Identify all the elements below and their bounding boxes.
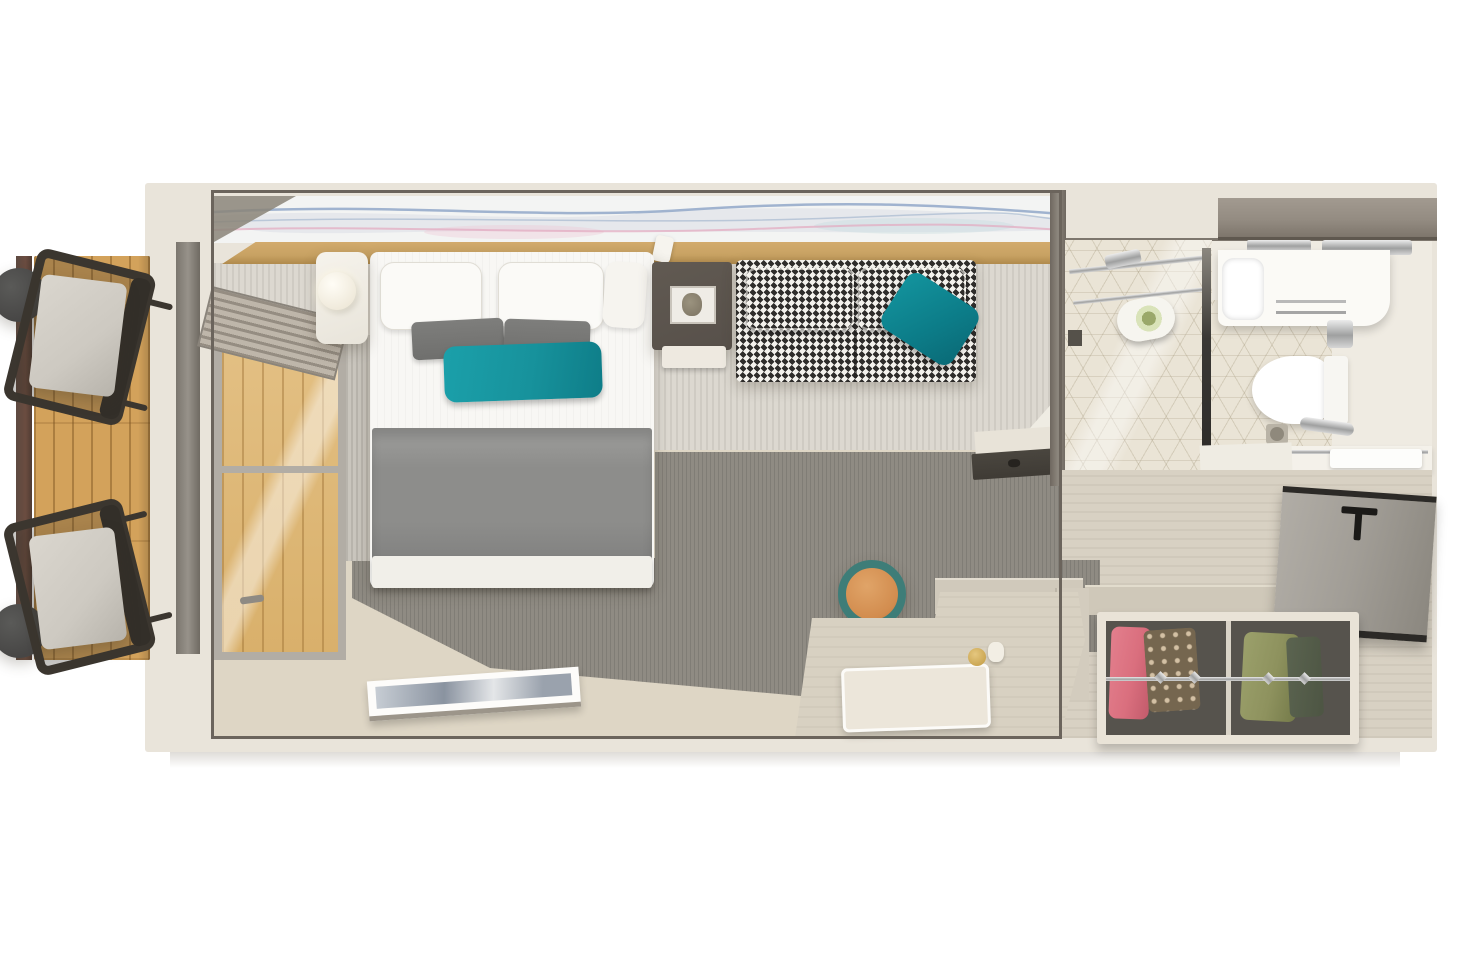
coat-hook [1008,459,1021,468]
desk-tray [841,663,991,732]
bedroom-window [214,330,346,660]
cabin-floorplan-render [0,0,1469,979]
cabin-drop-shadow [170,752,1400,768]
desk-accessory-white [988,642,1004,662]
sofa-back-cushion [746,268,854,330]
vanity-towel-rail [1276,300,1346,314]
bathroom-wood-counter [1218,198,1437,240]
side-table-decor [682,293,702,316]
chair-cushion [28,527,127,651]
bathroom-bedroom-wall [1050,190,1066,486]
carpet-strip-beside-bed [346,335,372,561]
side-table-shelf [662,346,726,368]
mural-waves [214,196,1062,243]
floor-artwork-print [375,673,572,709]
bath-corner-band [1200,442,1293,473]
toilet-tank [1324,356,1348,424]
window-middle-rail [222,466,338,473]
shower-enclosure [1065,240,1212,482]
door-handle [1353,512,1362,540]
sofa-seat-seam [854,330,857,378]
balcony-door-glass-edge [176,242,200,654]
bed-bolster-pillow [602,261,649,330]
desk-stool [838,560,906,628]
soap-dispenser [1327,320,1353,348]
wardrobe [1097,612,1359,744]
folded-towel [1330,449,1422,468]
nightstand-lamp [318,272,356,310]
bed-teal-throw-pillow [443,341,603,402]
chair-cushion [28,274,127,398]
shower-control [1068,330,1082,346]
desk-accessory-gold [968,648,986,666]
floor-drain [1266,424,1288,444]
garment-patterned [1143,627,1201,712]
towel-shelf [1286,446,1432,472]
shower-door-frame [1202,248,1211,474]
clothes-rail [1106,677,1350,681]
sink-basin [1222,258,1264,320]
abstract-mural [214,196,1062,243]
bed-foot-fold [372,556,652,588]
bed-gray-blanket [372,428,652,562]
drain-cover [1270,427,1284,441]
shower-glass-sheen [1065,240,1212,482]
